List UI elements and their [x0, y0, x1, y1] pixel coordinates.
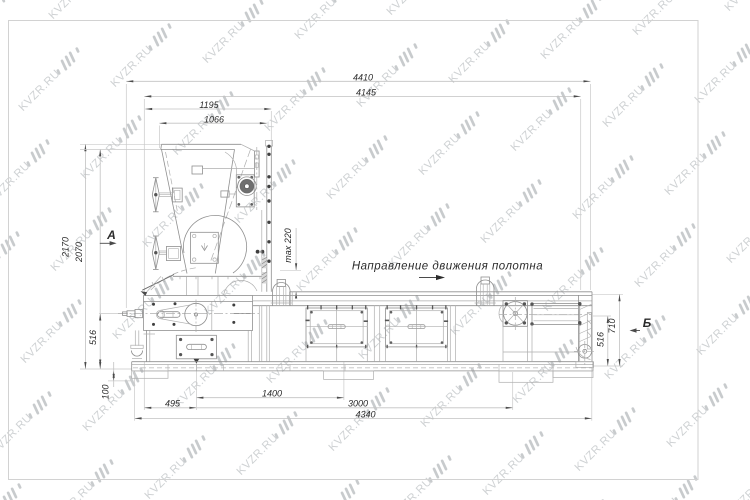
svg-text:1066: 1066 — [204, 114, 224, 124]
svg-text:Б: Б — [643, 316, 652, 330]
svg-text:А: А — [106, 228, 116, 242]
svg-text:4145: 4145 — [356, 87, 377, 97]
svg-text:2070: 2070 — [74, 242, 84, 263]
svg-text:1400: 1400 — [262, 389, 282, 399]
svg-text:3000: 3000 — [348, 399, 368, 409]
svg-text:max 220: max 220 — [283, 228, 293, 263]
svg-text:710: 710 — [607, 318, 617, 333]
svg-text:516: 516 — [596, 332, 606, 347]
svg-text:1195: 1195 — [199, 100, 219, 110]
svg-text:Направление движения полотна: Направление движения полотна — [352, 261, 543, 273]
svg-text:4410: 4410 — [353, 72, 373, 82]
svg-text:4340: 4340 — [355, 409, 375, 419]
svg-text:495: 495 — [165, 399, 181, 409]
svg-text:2170: 2170 — [61, 237, 71, 258]
svg-text:516: 516 — [88, 330, 98, 345]
svg-text:100: 100 — [101, 384, 111, 399]
